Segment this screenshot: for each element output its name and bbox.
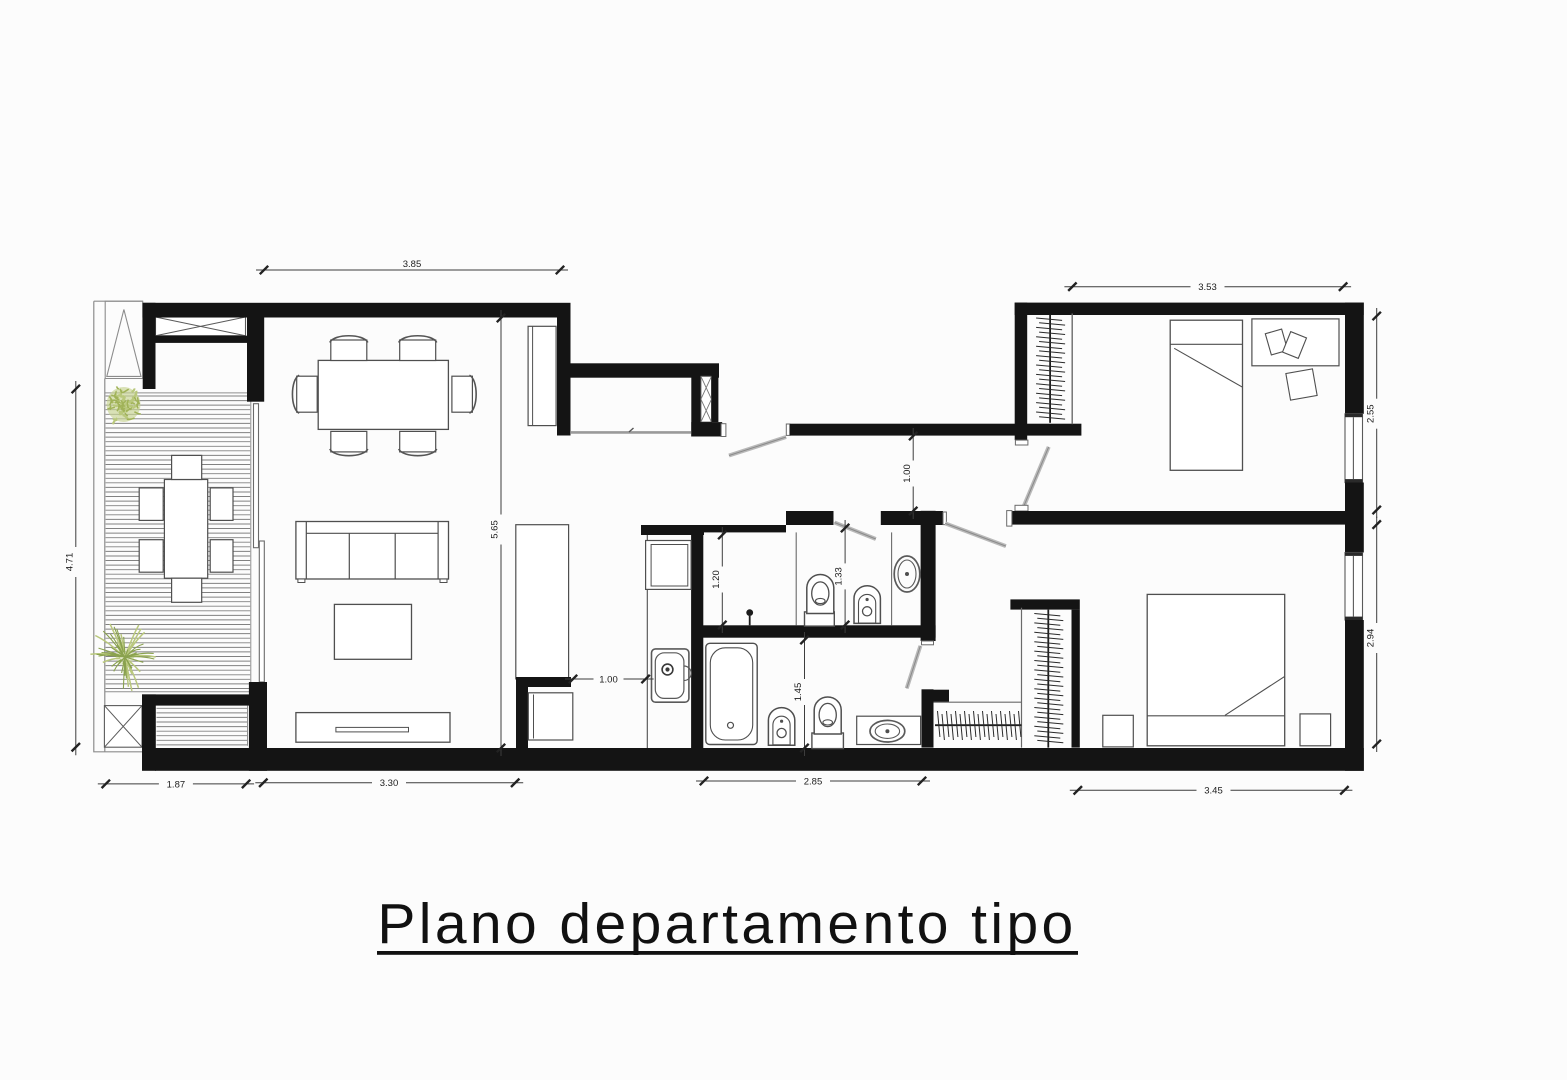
svg-text:1.45: 1.45 — [793, 683, 804, 702]
svg-text:2.94: 2.94 — [1365, 629, 1376, 648]
svg-text:3.45: 3.45 — [1204, 786, 1223, 797]
svg-text:1.33: 1.33 — [834, 567, 845, 586]
svg-text:4.71: 4.71 — [64, 553, 75, 572]
svg-text:Plano departamento tipo: Plano departamento tipo — [377, 892, 1076, 956]
svg-text:2.55: 2.55 — [1365, 404, 1376, 423]
svg-text:1.20: 1.20 — [711, 570, 722, 589]
svg-text:5.65: 5.65 — [490, 520, 501, 539]
svg-text:1.00: 1.00 — [599, 674, 618, 685]
svg-text:3.85: 3.85 — [403, 259, 422, 270]
svg-text:2.85: 2.85 — [804, 776, 823, 787]
svg-text:1.00: 1.00 — [902, 464, 913, 483]
svg-text:3.53: 3.53 — [1198, 282, 1217, 293]
svg-text:3.30: 3.30 — [380, 778, 399, 789]
svg-text:1.87: 1.87 — [167, 779, 186, 790]
